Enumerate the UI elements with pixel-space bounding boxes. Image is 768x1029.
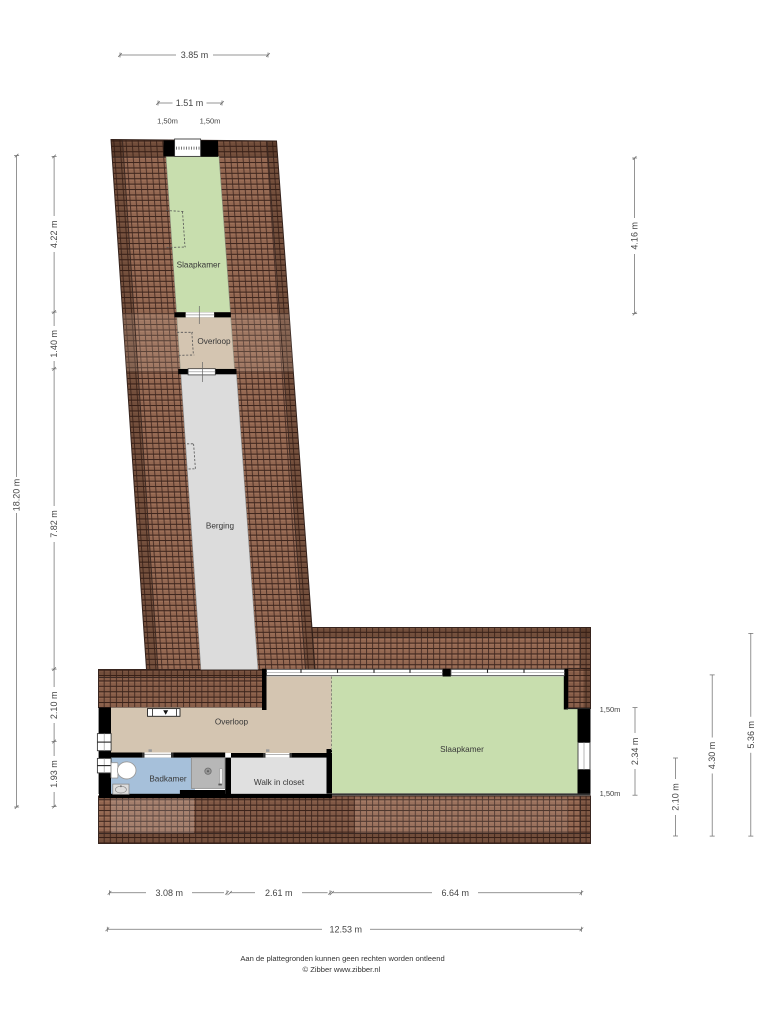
svg-text:2.10 m: 2.10 m — [671, 783, 681, 811]
svg-text:4.30 m: 4.30 m — [707, 742, 717, 770]
svg-text:7.82 m: 7.82 m — [49, 510, 59, 538]
svg-text:3.85 m: 3.85 m — [181, 50, 209, 60]
svg-text:18.20 m: 18.20 m — [12, 479, 22, 512]
svg-text:1,50m: 1,50m — [600, 789, 621, 798]
svg-text:© Zibber www.zibber.nl: © Zibber www.zibber.nl — [303, 965, 381, 974]
svg-text:Overloop: Overloop — [215, 718, 249, 727]
svg-text:3.08 m: 3.08 m — [156, 888, 184, 898]
svg-text:12.53 m: 12.53 m — [330, 924, 363, 934]
svg-text:Berging: Berging — [206, 522, 235, 531]
svg-text:Slaapkamer: Slaapkamer — [440, 745, 484, 754]
svg-text:Overloop: Overloop — [197, 337, 231, 346]
svg-text:2.34 m: 2.34 m — [630, 738, 640, 766]
svg-text:1,50m: 1,50m — [600, 705, 621, 714]
svg-text:2.61 m: 2.61 m — [265, 888, 293, 898]
svg-text:5.36 m: 5.36 m — [746, 721, 756, 749]
svg-text:1.40 m: 1.40 m — [49, 330, 59, 358]
svg-text:1,50m: 1,50m — [200, 117, 221, 126]
svg-text:Walk in closet: Walk in closet — [254, 778, 305, 787]
svg-text:Aan de plattegronden kunnen ge: Aan de plattegronden kunnen geen rechten… — [240, 954, 444, 963]
svg-text:4.16 m: 4.16 m — [630, 222, 640, 250]
svg-text:Slaapkamer: Slaapkamer — [177, 261, 221, 270]
svg-text:4.22 m: 4.22 m — [49, 221, 59, 249]
svg-text:1.51 m: 1.51 m — [176, 98, 204, 108]
svg-text:2.10 m: 2.10 m — [49, 692, 59, 720]
svg-text:1.93 m: 1.93 m — [49, 760, 59, 788]
svg-text:6.64 m: 6.64 m — [441, 888, 469, 898]
svg-text:Badkamer: Badkamer — [149, 775, 187, 784]
svg-text:1,50m: 1,50m — [157, 117, 178, 126]
